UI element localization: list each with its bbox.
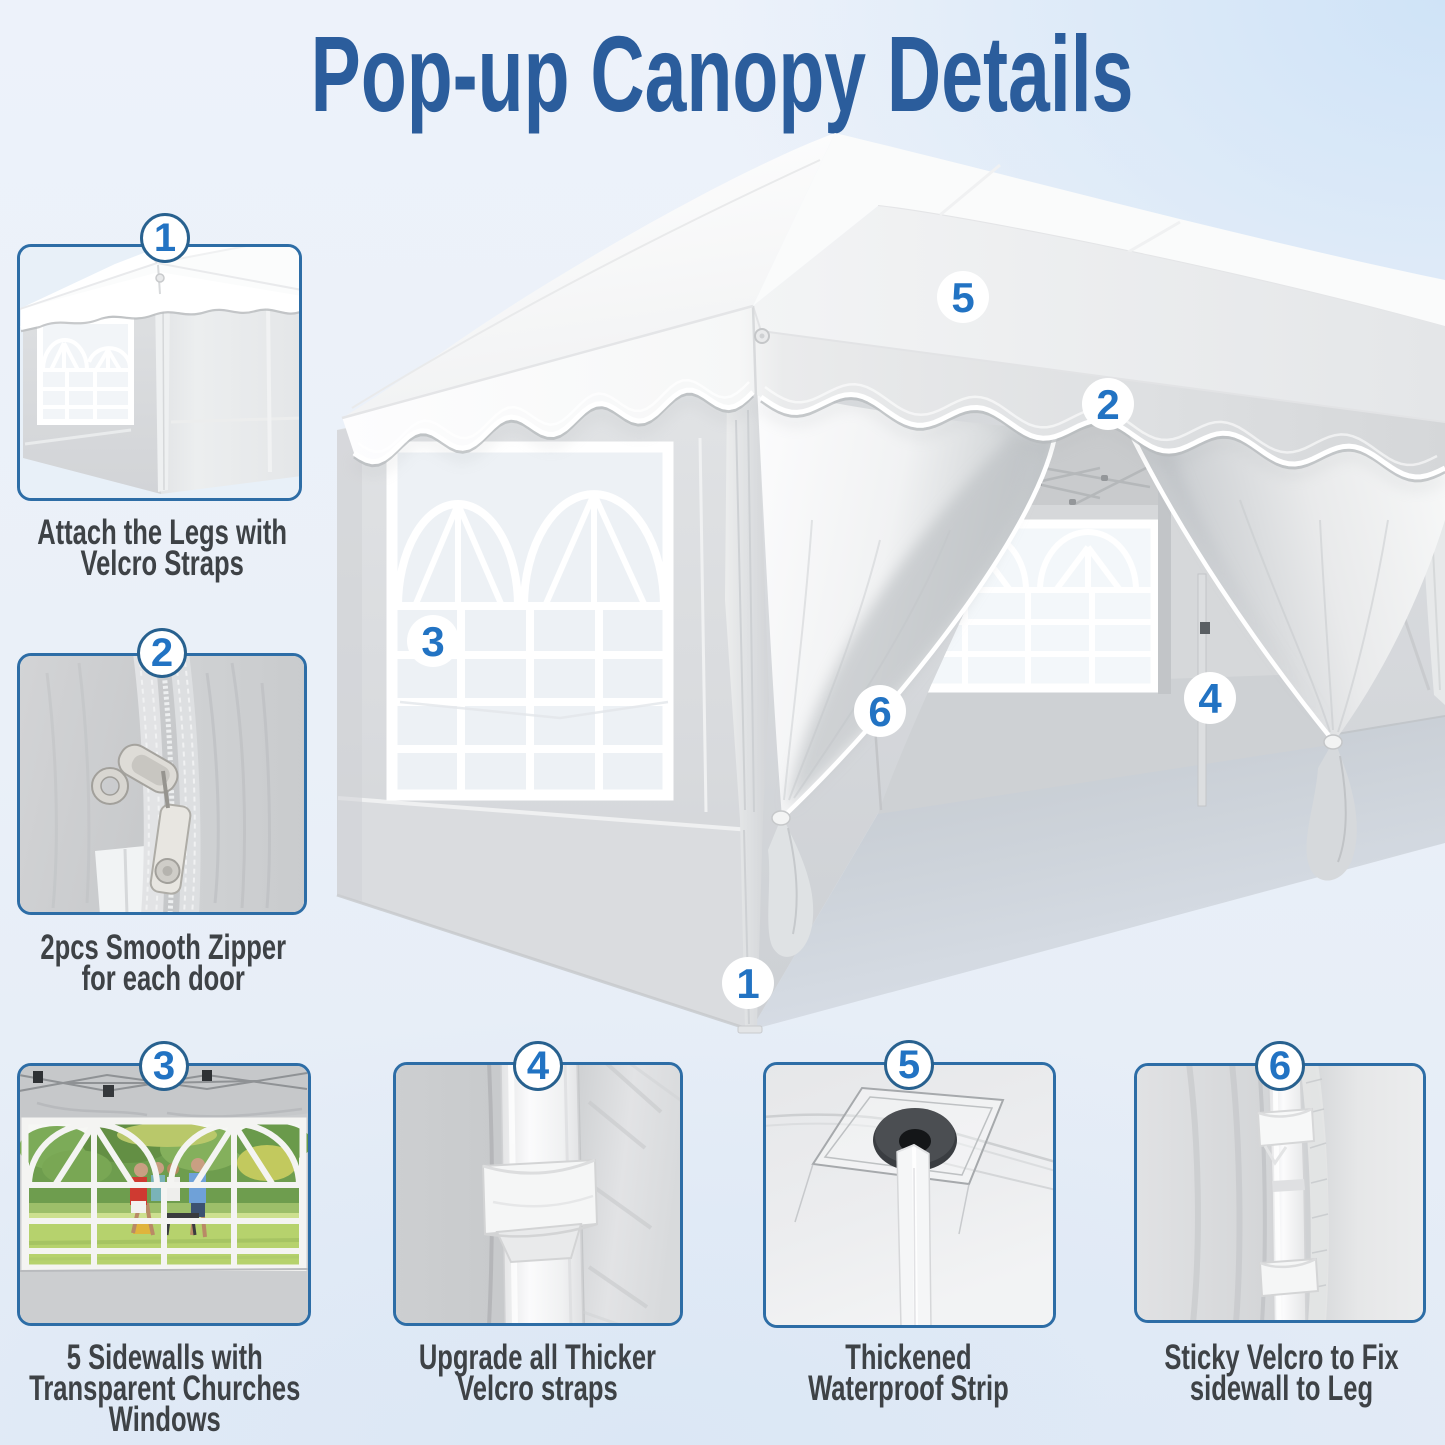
- svg-text:2: 2: [1096, 381, 1119, 428]
- svg-text:6: 6: [868, 688, 891, 735]
- svg-text:3: 3: [421, 618, 444, 665]
- svg-text:4: 4: [1198, 675, 1222, 722]
- svg-text:5: 5: [951, 274, 974, 321]
- svg-text:1: 1: [736, 960, 759, 1007]
